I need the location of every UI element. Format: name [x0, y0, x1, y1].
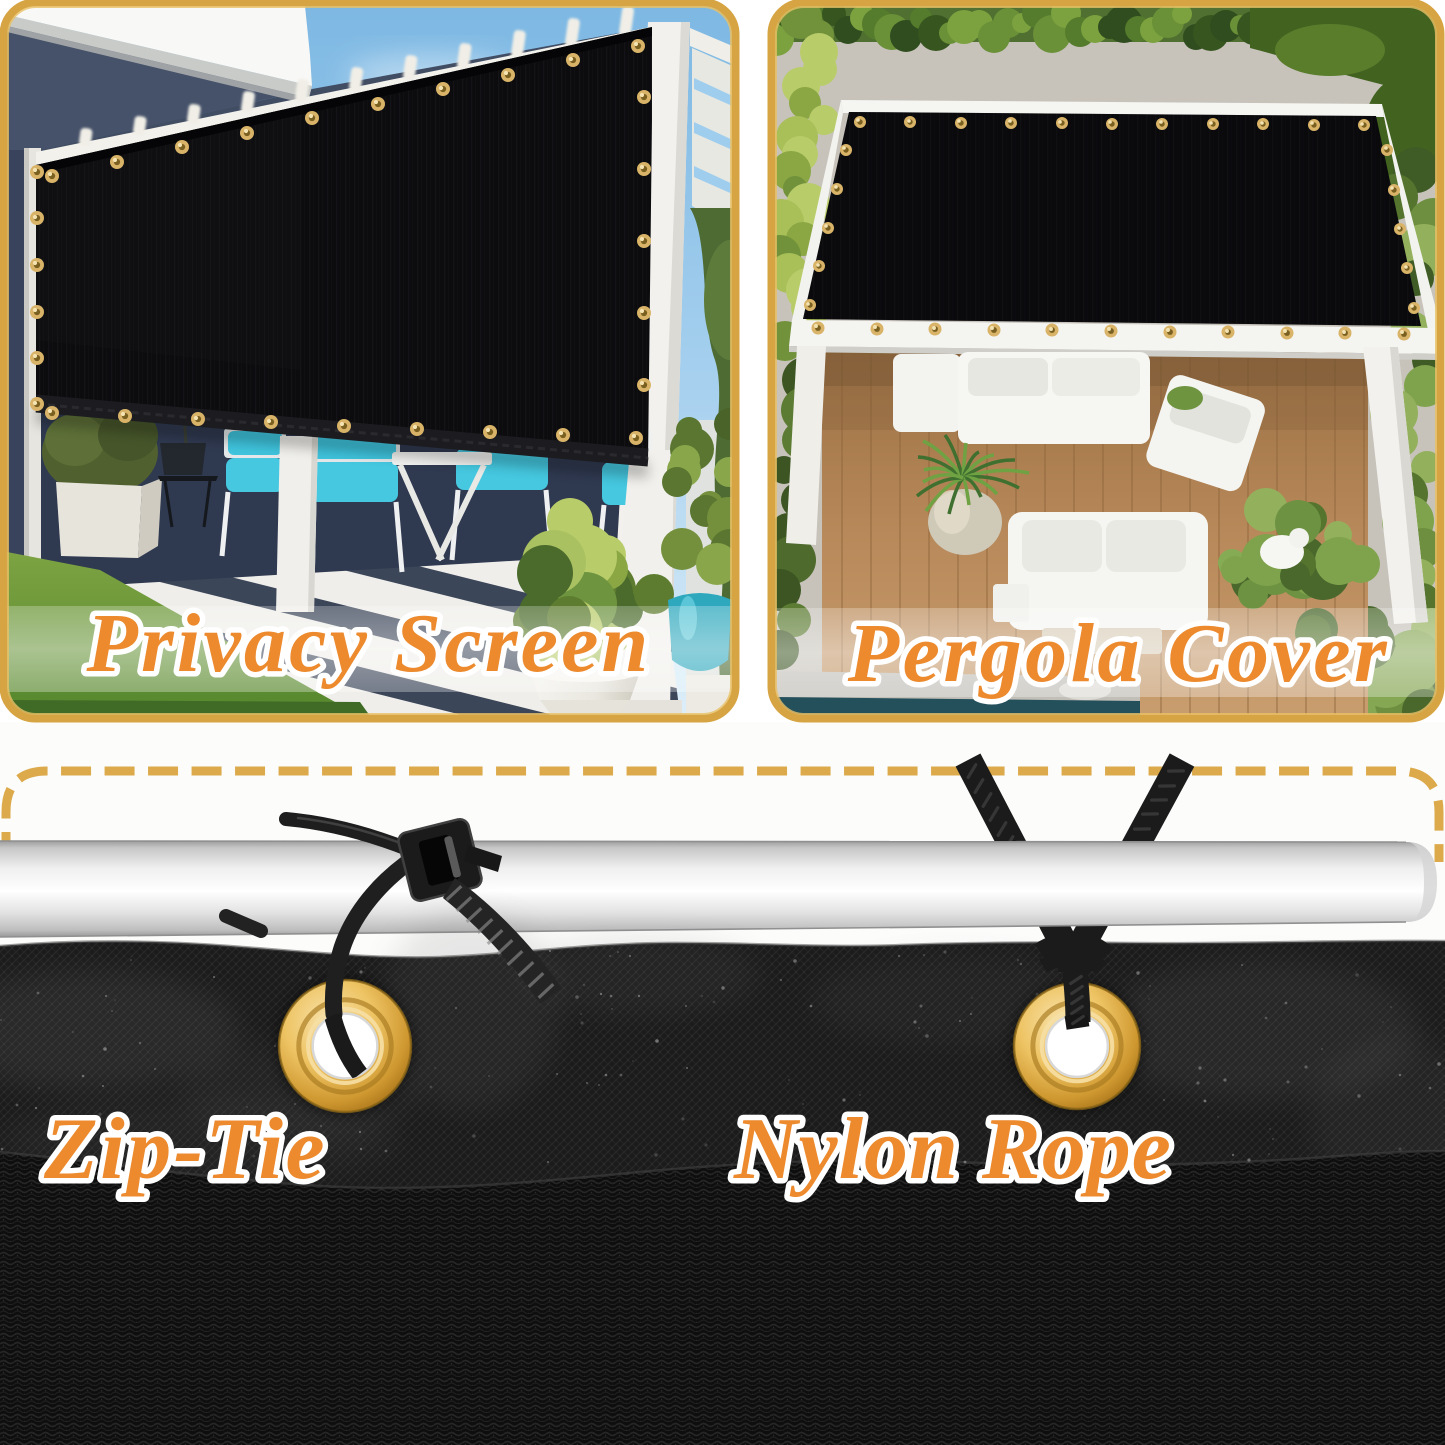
svg-text:Nylon Rope: Nylon Rope	[733, 1101, 1172, 1198]
svg-text:Pergola Cover: Pergola Cover	[847, 607, 1390, 700]
svg-text:Zip-Tie: Zip-Tie	[43, 1101, 327, 1198]
svg-text:Privacy Screen: Privacy Screen	[86, 597, 652, 690]
